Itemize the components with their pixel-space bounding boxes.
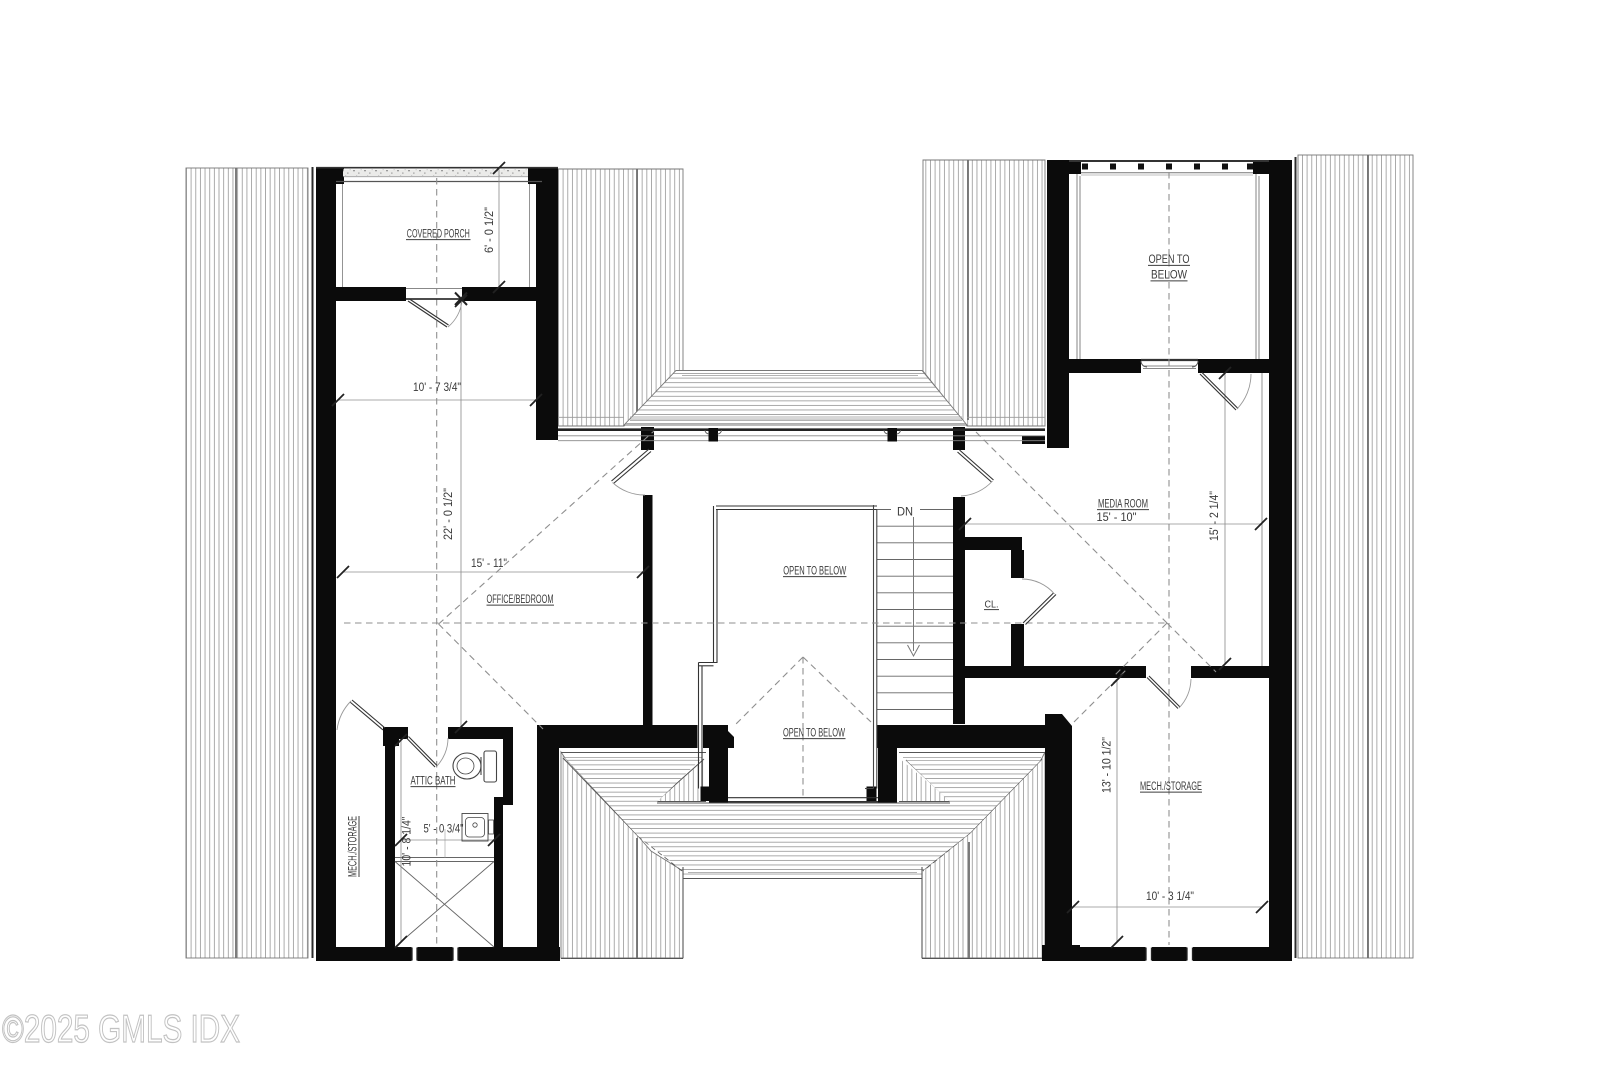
svg-text:MEDIA ROOM: MEDIA ROOM [1098, 497, 1148, 511]
svg-text:6' - 0 1/2": 6' - 0 1/2" [482, 207, 496, 253]
svg-text:OPEN TO BELOW: OPEN TO BELOW [783, 726, 845, 740]
svg-text:13' - 10 1/2": 13' - 10 1/2" [1100, 737, 1114, 793]
svg-text:10' - 7 3/4": 10' - 7 3/4" [413, 380, 461, 394]
svg-text:OFFICE/BEDROOM: OFFICE/BEDROOM [487, 592, 554, 606]
svg-text:15' - 11": 15' - 11" [471, 556, 507, 570]
svg-text:OPEN TO: OPEN TO [1149, 252, 1190, 266]
svg-text:MECH./STORAGE: MECH./STORAGE [346, 816, 360, 877]
svg-text:22' - 0 1/2": 22' - 0 1/2" [441, 488, 455, 540]
svg-text:COVERED PORCH: COVERED PORCH [407, 227, 470, 241]
svg-text:15' - 10": 15' - 10" [1097, 510, 1137, 524]
svg-text:ATTIC BATH: ATTIC BATH [411, 774, 456, 788]
svg-text:OPEN TO BELOW: OPEN TO BELOW [783, 564, 846, 578]
svg-text:10' - 8 1/4": 10' - 8 1/4" [400, 817, 414, 867]
svg-text:CL.: CL. [985, 599, 999, 611]
svg-text:©2025 GMLS IDX: ©2025 GMLS IDX [2, 1008, 240, 1051]
svg-text:10' - 3 1/4": 10' - 3 1/4" [1146, 889, 1194, 903]
svg-text:MECH./STORAGE: MECH./STORAGE [1140, 779, 1202, 793]
svg-text:DN: DN [897, 505, 913, 519]
svg-text:BELOW: BELOW [1151, 268, 1187, 282]
svg-text:5' - 0 3/4": 5' - 0 3/4" [424, 822, 464, 836]
svg-text:15' - 2 1/4": 15' - 2 1/4" [1207, 491, 1221, 541]
